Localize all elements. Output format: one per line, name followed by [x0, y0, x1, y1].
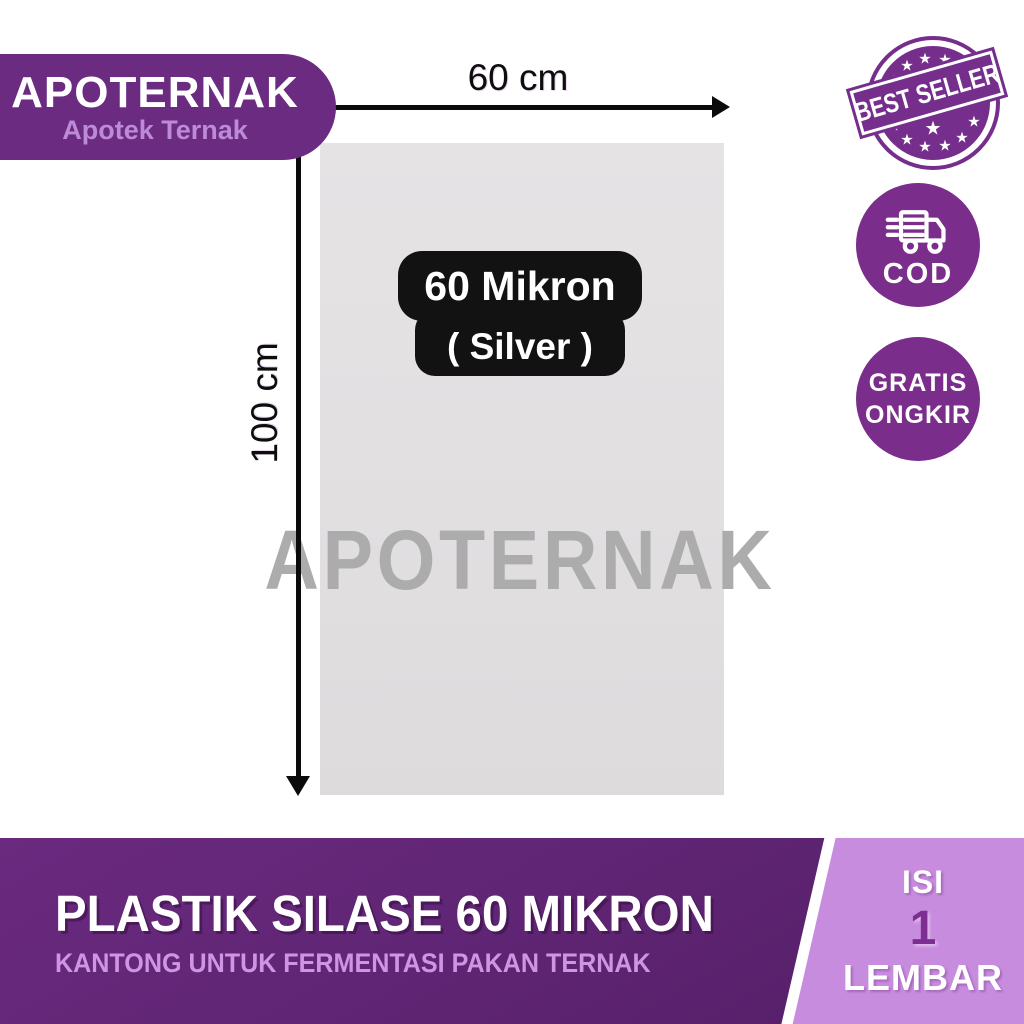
star-icon: [918, 52, 931, 67]
spec-badge-line1: 60 Mikron: [424, 263, 615, 310]
cod-badge: COD: [856, 183, 980, 307]
width-arrow-line: [330, 105, 714, 110]
bottom-banner: PLASTIK SILASE 60 MIKRON KANTONG UNTUK F…: [0, 838, 1024, 1024]
delivery-truck-icon: [885, 206, 951, 258]
cod-label: COD: [883, 260, 953, 289]
quantity-value: 1: [910, 905, 937, 953]
star-icon: [967, 115, 980, 130]
quantity-label-bottom: LEMBAR: [843, 960, 1003, 996]
free-shipping-line1: GRATIS: [869, 367, 968, 400]
star-icon: [955, 131, 968, 146]
quantity-stack: ISI 1 LEMBAR: [830, 838, 1016, 1024]
width-arrowhead-icon: [712, 96, 730, 118]
brand-name: APOTERNAK: [11, 71, 299, 115]
best-seller-stamp: BEST SELLER: [866, 36, 1000, 170]
spec-badge-line2: ( Silver ): [447, 326, 593, 368]
plastic-bag-photo: [320, 143, 724, 795]
free-shipping-line2: ONGKIR: [865, 399, 971, 432]
quantity-label-top: ISI: [902, 866, 944, 898]
bag-watermark: APOTERNAK: [214, 512, 826, 609]
star-icon: [900, 59, 913, 74]
star-icon: [938, 139, 951, 154]
product-image: APOTERNAK 60 Mikron ( Silver ) 60 cm 100…: [0, 0, 1024, 1024]
brand-tagline: Apotek Ternak: [62, 117, 248, 144]
star-icon: [924, 120, 941, 139]
product-title: PLASTIK SILASE 60 MIKRON: [55, 884, 714, 943]
height-dimension-label: 100 cm: [244, 342, 286, 463]
star-icon: [918, 140, 931, 155]
height-arrow-line: [296, 150, 301, 778]
product-subtitle: KANTONG UNTUK FERMENTASI PAKAN TERNAK: [55, 948, 651, 979]
star-icon: [900, 133, 913, 148]
height-arrowhead-icon: [286, 776, 310, 796]
width-dimension-label: 60 cm: [418, 57, 618, 99]
spec-badge-bottom: ( Silver ): [415, 310, 625, 376]
free-shipping-badge: GRATIS ONGKIR: [856, 337, 980, 461]
brand-logo-badge: APOTERNAK Apotek Ternak: [0, 54, 336, 160]
